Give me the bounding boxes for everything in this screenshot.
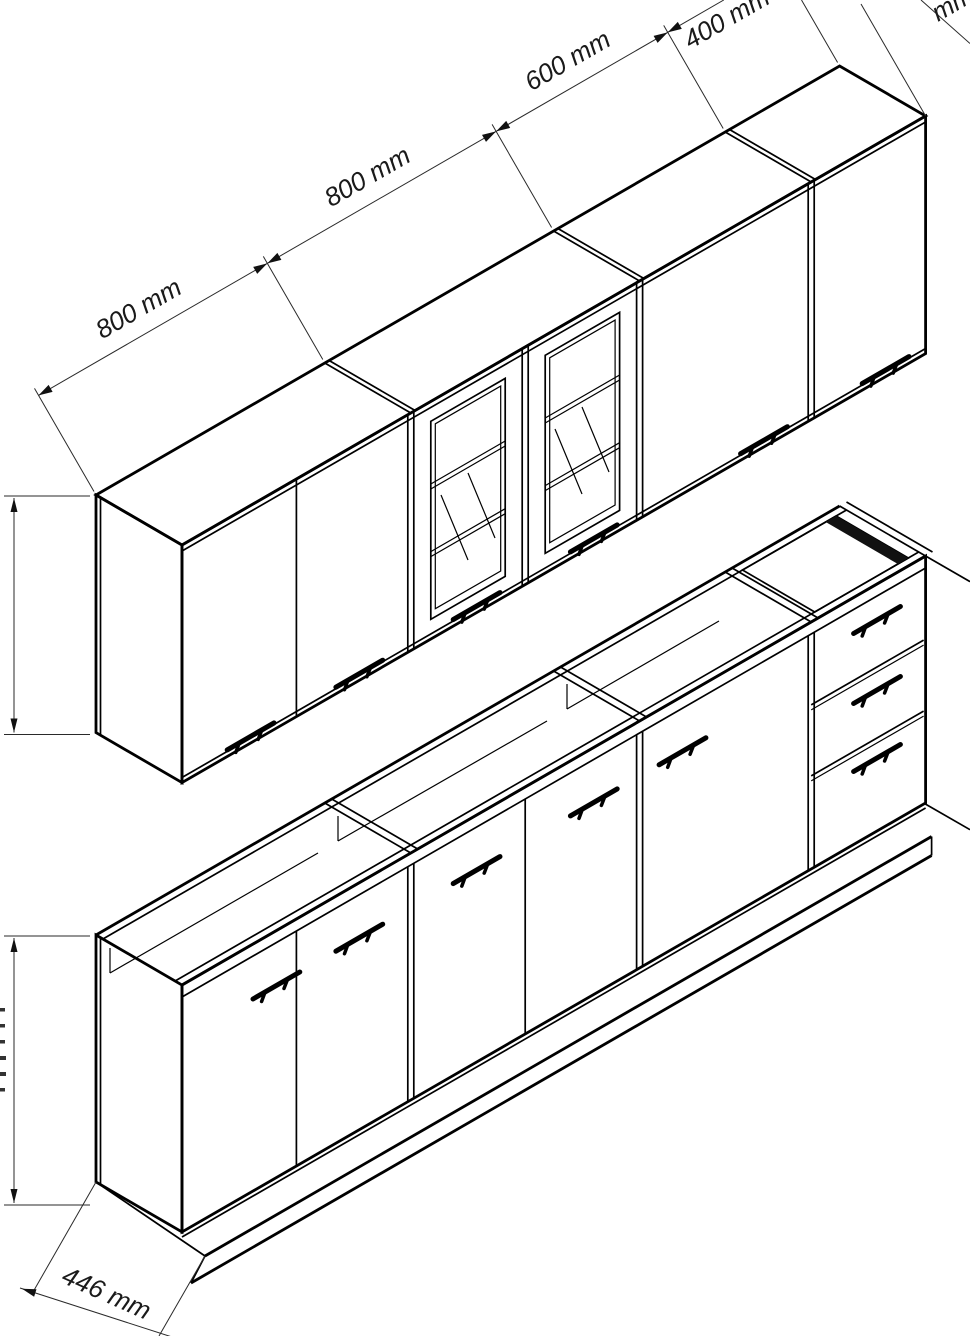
- shelf-edge: [431, 446, 505, 489]
- glass-streak: [441, 495, 468, 560]
- drawer-divider: [811, 645, 923, 710]
- dimension-annotations: 800 mm 800 mm 600 mm 400 mm mm: [0, 0, 970, 1336]
- door-handle: [453, 593, 500, 623]
- front-rail-edge: [175, 552, 919, 981]
- shelf-edge: [545, 375, 619, 418]
- extension-line: [802, 0, 838, 63]
- back-rail: [96, 506, 840, 935]
- plinth-edge: [96, 1182, 205, 1256]
- brace: [847, 502, 933, 552]
- drawer-divider: [811, 716, 923, 781]
- extension-line: [35, 388, 95, 491]
- back-rail-edge: [103, 510, 847, 939]
- glass-frame-inner: [435, 386, 500, 609]
- door-handle: [336, 660, 383, 690]
- extension-line: [263, 256, 323, 359]
- drawer-handle: [854, 745, 901, 775]
- arrowhead: [39, 385, 53, 396]
- isometric-drawing-canvas: 800 mm 800 mm 600 mm 400 mm mm: [0, 0, 970, 1336]
- arrowhead: [654, 32, 668, 43]
- extension-line: [861, 4, 926, 116]
- clipped-label-fragments: [0, 1008, 6, 1092]
- dimension-label-400: 400 mm: [678, 0, 774, 55]
- dimension-label-600: 600 mm: [519, 24, 615, 97]
- arrowhead: [253, 263, 267, 274]
- wall-left-end-panel: [96, 495, 182, 783]
- door-bottom-edge: [182, 808, 926, 1237]
- dimension-label-800-1: 800 mm: [90, 272, 186, 345]
- glass-door-left: [431, 378, 505, 619]
- arrowhead: [482, 131, 496, 142]
- door-handle: [570, 789, 617, 819]
- shelf-edge: [431, 441, 505, 484]
- top-seam: [558, 229, 644, 279]
- brace: [332, 799, 418, 849]
- wall-cabinet-run: [96, 66, 926, 783]
- dimension-line: [39, 0, 724, 395]
- shelf-edge: [545, 443, 619, 486]
- door-handle: [336, 924, 383, 954]
- wall-top-face: [96, 66, 926, 545]
- brace: [725, 572, 811, 622]
- base-cabinet-run: [96, 502, 970, 1283]
- arrowhead: [11, 1189, 18, 1203]
- base-left-end-panel: [96, 935, 182, 1232]
- shelf-edge: [431, 509, 505, 552]
- dimension-label-800-2: 800 mm: [319, 140, 415, 213]
- door-handle: [253, 972, 300, 1002]
- extension-line: [492, 124, 551, 227]
- plinth-floor-edge: [191, 856, 932, 1284]
- door-handle: [659, 738, 706, 768]
- top-seam: [554, 231, 640, 281]
- brace: [732, 568, 818, 618]
- kitchen-cabinets-technical-drawing: 800 mm 800 mm 600 mm 400 mm mm: [0, 0, 970, 1336]
- arrowhead: [11, 938, 18, 952]
- plinth: [96, 837, 932, 1284]
- door-handle: [570, 525, 617, 555]
- top-seam: [730, 130, 816, 180]
- arrowhead: [22, 1289, 37, 1297]
- brace: [561, 667, 647, 717]
- glass-streak: [555, 429, 582, 494]
- drawer-stack: [811, 640, 923, 781]
- drawer-unit-top-frame: [743, 516, 909, 612]
- shelf-edge: [545, 380, 619, 423]
- door-handle: [453, 857, 500, 887]
- arrowhead: [267, 253, 281, 264]
- drawer-handle: [854, 607, 901, 637]
- clipped-dimension-label: mm: [926, 0, 970, 27]
- glass-door-right: [545, 312, 619, 553]
- frame-shadow-band: [826, 516, 909, 564]
- plinth-top-edge: [205, 837, 932, 1257]
- top-seam: [325, 363, 411, 413]
- door-handle: [862, 357, 909, 387]
- interior-edge: [338, 721, 547, 841]
- arrowhead: [496, 121, 510, 131]
- arrowhead: [11, 498, 18, 512]
- arrowhead: [11, 719, 18, 733]
- interior-edge: [110, 853, 318, 973]
- right-end-edge: [924, 803, 970, 830]
- interior-edge: [567, 621, 719, 709]
- right-end-edge: [926, 556, 970, 582]
- door-handle: [741, 427, 788, 457]
- glass-frame-inner: [550, 320, 615, 543]
- door-handle: [227, 723, 274, 753]
- extension-line: [159, 1256, 205, 1336]
- top-seam: [725, 132, 811, 182]
- top-seam: [329, 361, 415, 411]
